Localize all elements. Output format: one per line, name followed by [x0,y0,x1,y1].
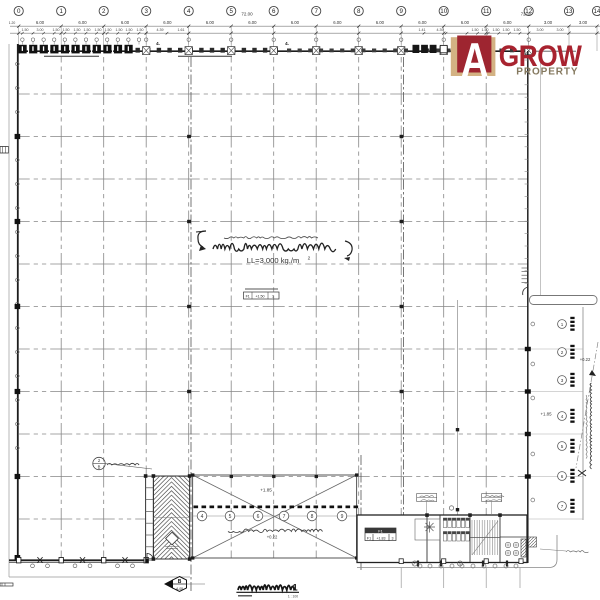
svg-text:4: 4 [201,514,204,520]
svg-text:+1.85: +1.85 [540,412,552,417]
svg-text:11: 11 [483,8,490,15]
svg-text:6.00: 6.00 [291,20,300,25]
svg-text:1.50: 1.50 [74,28,81,32]
svg-text:3.00: 3.00 [557,28,564,32]
svg-text:4.: 4. [156,41,160,46]
svg-text:72.00: 72.00 [241,12,253,17]
svg-text:6.00: 6.00 [248,20,257,25]
svg-text:A: A [461,34,489,87]
svg-text:2: 2 [561,350,564,355]
svg-text:6: 6 [257,514,260,520]
svg-text:LL=3,000 kg./m: LL=3,000 kg./m [247,256,300,265]
svg-text:1.50: 1.50 [116,28,123,32]
svg-text:4.: 4. [285,41,289,46]
svg-text:1.61: 1.61 [178,28,185,32]
svg-text:1 : 100: 1 : 100 [288,594,298,598]
svg-text:4: 4 [561,414,564,419]
svg-text:1: 1 [561,322,564,327]
svg-text:1.50: 1.50 [472,28,479,32]
svg-text:7: 7 [561,504,564,509]
svg-text:1: 1 [272,294,274,298]
svg-text:3: 3 [561,378,564,383]
svg-text:5: 5 [229,8,233,15]
svg-text:F1: F1 [367,537,371,541]
svg-text:6.00: 6.00 [206,20,215,25]
svg-text:4.39: 4.39 [437,28,444,32]
svg-text:1.20: 1.20 [9,21,16,25]
svg-text:4.39: 4.39 [157,28,164,32]
svg-text:+1.50: +1.50 [255,294,264,298]
svg-text:1.41: 1.41 [419,28,426,32]
svg-text:2: 2 [102,8,106,15]
svg-text:8: 8 [311,514,314,520]
svg-text:10: 10 [440,8,447,15]
svg-text:13: 13 [566,8,573,15]
svg-text:A-08: A-08 [176,587,183,591]
svg-text:6.00: 6.00 [78,20,87,25]
svg-text:6.00: 6.00 [503,20,512,25]
svg-text:+1.83: +1.83 [376,537,385,541]
svg-text:6.00: 6.00 [163,20,172,25]
svg-text:4: 4 [187,8,191,15]
svg-text:F1: F1 [246,294,250,298]
svg-text:9: 9 [399,8,403,15]
svg-text:1: 1 [59,8,63,15]
svg-text:B: B [178,579,182,585]
svg-text:6.00: 6.00 [376,20,385,25]
svg-text:F1: F1 [378,529,382,533]
svg-text:7: 7 [314,8,318,15]
svg-text:3.00: 3.00 [579,20,588,25]
svg-text:1.50: 1.50 [105,28,112,32]
svg-text:6: 6 [561,474,564,479]
svg-text:1.50: 1.50 [84,28,91,32]
svg-text:1.50: 1.50 [137,28,144,32]
svg-text:6.00: 6.00 [461,20,470,25]
svg-text:+1.85: +1.85 [260,488,272,493]
svg-text:6.00: 6.00 [333,20,342,25]
svg-text:14: 14 [594,8,600,15]
svg-text:1.50: 1.50 [514,28,521,32]
svg-text:2: 2 [308,256,311,262]
svg-text:7: 7 [283,514,286,520]
svg-text:8: 8 [357,8,361,15]
svg-text:1.50: 1.50 [503,28,510,32]
svg-text:1.50: 1.50 [53,28,60,32]
svg-text:+0.22: +0.22 [267,535,278,540]
svg-text:6.00: 6.00 [121,20,130,25]
svg-text:1.50: 1.50 [63,28,70,32]
svg-text:0: 0 [17,8,21,15]
svg-text:72.00: 72.00 [521,12,532,17]
svg-text:1.50: 1.50 [126,28,133,32]
svg-text:6.00: 6.00 [36,20,45,25]
svg-text:3.00: 3.00 [37,28,44,32]
svg-text:6.00: 6.00 [418,20,427,25]
svg-text:1.50: 1.50 [482,28,489,32]
svg-text:3.00: 3.00 [544,20,553,25]
svg-text:1.50: 1.50 [95,28,102,32]
svg-text:+0.22: +0.22 [580,357,591,362]
svg-text:5: 5 [561,444,564,449]
svg-text:PROPERTY: PROPERTY [516,66,578,77]
svg-text:3: 3 [144,8,148,15]
svg-text:3: 3 [392,537,394,541]
svg-text:6: 6 [272,8,276,15]
svg-text:9: 9 [341,514,344,520]
svg-text:3.00: 3.00 [537,28,544,32]
svg-text:5: 5 [229,514,232,520]
svg-text:B: B [98,464,101,469]
svg-text:1.50: 1.50 [22,28,29,32]
svg-text:1.50: 1.50 [493,28,500,32]
